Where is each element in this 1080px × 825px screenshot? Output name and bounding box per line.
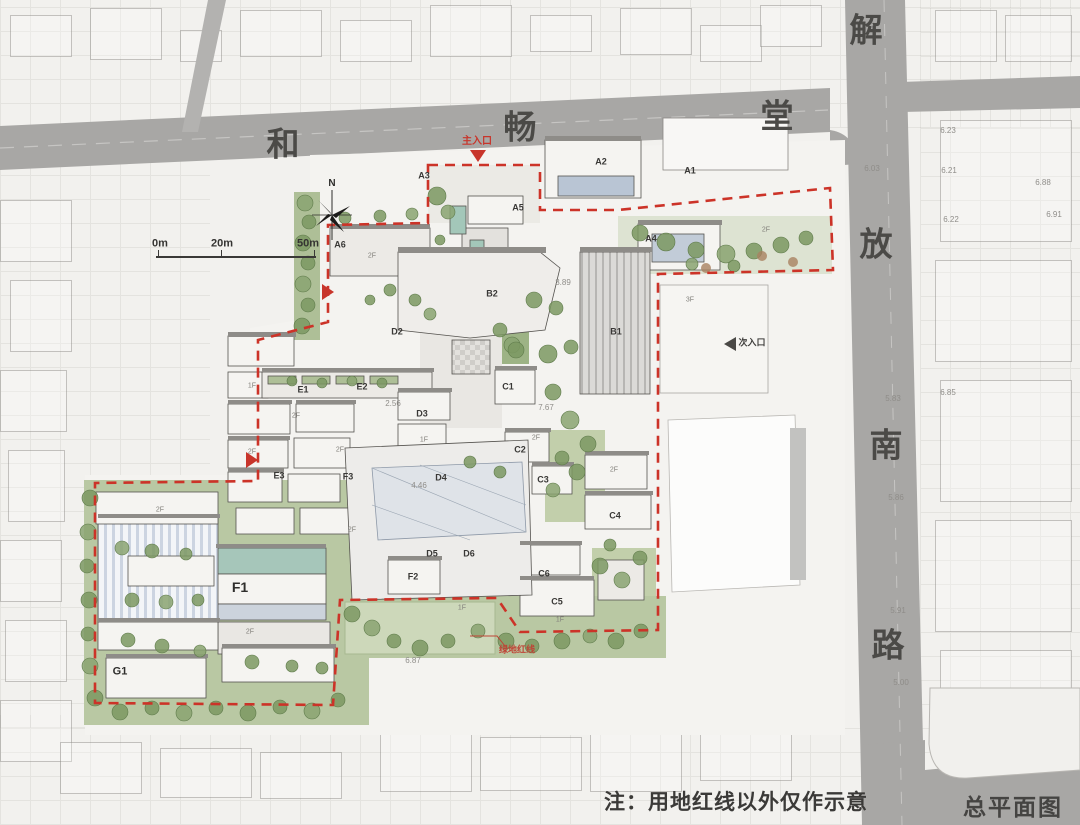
spot-elevation: 6.03: [864, 165, 880, 173]
floor-count-tag: 2F: [246, 629, 254, 636]
building-label: A1: [684, 167, 696, 176]
floor-count-tag: 1F: [556, 617, 564, 624]
tree-icon: [592, 558, 608, 574]
floor-count-tag: 2F: [762, 227, 770, 234]
spot-elevation: 6.22: [943, 216, 959, 224]
spot-elevation: 6.91: [1046, 211, 1062, 219]
tree-icon: [81, 627, 95, 641]
site-plan-canvas: 和畅堂解放南路A1A2A3A4A5A6B1B2C1C2C3C4C5C6D2D3D…: [0, 0, 1080, 825]
tree-icon: [406, 208, 418, 220]
building-label: A3: [418, 172, 430, 181]
main-entrance-label: 主入口: [462, 137, 492, 147]
building-label: D2: [391, 328, 403, 337]
tree-icon: [301, 256, 315, 270]
building-label: D3: [416, 410, 428, 419]
spot-elevation: 7.67: [538, 404, 554, 412]
building-label: A6: [334, 241, 346, 250]
tree-icon: [192, 594, 204, 606]
tree-icon: [614, 572, 630, 588]
tree-icon: [409, 294, 421, 306]
building-label: D4: [435, 474, 447, 483]
building-label-f1: F1: [232, 580, 248, 594]
green-red-line-label: 绿地红线: [499, 646, 535, 655]
tree-icon: [686, 258, 698, 270]
floor-count-tag: 1F: [248, 383, 256, 390]
tree-icon: [145, 544, 159, 558]
tree-icon: [295, 276, 311, 292]
tree-icon: [555, 451, 569, 465]
shrub-icon: [788, 257, 798, 267]
building-label: C1: [502, 383, 514, 392]
tree-icon: [317, 378, 327, 388]
tree-icon: [546, 483, 560, 497]
building-label: D6: [463, 550, 475, 559]
spot-elevation: 6.23: [940, 127, 956, 135]
secondary-entrance-label: 次入口: [738, 339, 765, 348]
tree-icon: [374, 210, 386, 222]
tree-icon: [549, 301, 563, 315]
scale-tick-label: 0m: [152, 239, 168, 250]
scale-tick-label: 20m: [211, 239, 233, 250]
building-label: B1: [610, 328, 622, 337]
building-label: C6: [538, 570, 550, 579]
floor-count-tag: 2F: [336, 447, 344, 454]
drawing-title: 总平面图: [963, 788, 1063, 822]
tree-icon: [112, 704, 128, 720]
scale-tick-20: [221, 250, 222, 256]
tree-icon: [286, 660, 298, 672]
spot-elevation: 6.87: [405, 657, 421, 665]
tree-icon: [688, 242, 704, 258]
tree-icon: [301, 298, 315, 312]
tree-icon: [441, 634, 455, 648]
tree-icon: [297, 195, 313, 211]
building-label: B2: [486, 290, 498, 299]
tree-icon: [508, 342, 524, 358]
spot-elevation: 6.85: [940, 389, 956, 397]
tree-icon: [287, 376, 297, 386]
tree-icon: [773, 237, 789, 253]
building-label: D5: [426, 550, 438, 559]
tree-icon: [273, 700, 287, 714]
tree-icon: [428, 187, 446, 205]
tree-icon: [80, 524, 96, 540]
tree-icon: [302, 215, 316, 229]
tree-icon: [539, 345, 557, 363]
street-name-char-hechangtang: 和: [267, 128, 300, 161]
floor-count-tag: 2F: [532, 435, 540, 442]
tree-icon: [604, 539, 616, 551]
spot-elevation: 5.83: [885, 395, 901, 403]
shrub-icon: [701, 263, 711, 273]
tree-icon: [608, 633, 624, 649]
spot-elevation: 3.89: [555, 279, 571, 287]
tree-icon: [365, 295, 375, 305]
tree-icon: [435, 235, 445, 245]
tree-icon: [569, 464, 585, 480]
tree-icon: [526, 292, 542, 308]
north-label: N: [328, 179, 335, 189]
spot-elevation: 5.00: [893, 679, 909, 687]
tree-icon: [580, 436, 596, 452]
tree-icon: [424, 308, 436, 320]
tree-icon: [316, 662, 328, 674]
spot-elevation: 2.56: [385, 400, 401, 408]
building-label: A4: [645, 235, 657, 244]
tree-icon: [384, 284, 396, 296]
floor-count-tag: 2F: [248, 449, 256, 456]
building-label: F2: [408, 573, 419, 582]
building-label: E1: [297, 386, 308, 395]
tree-icon: [412, 640, 428, 656]
tree-icon: [121, 633, 135, 647]
tree-icon: [377, 378, 387, 388]
building-label: C4: [609, 512, 621, 521]
street-name-char-hechangtang: 畅: [504, 111, 537, 144]
floor-count-tag: 2F: [368, 253, 376, 260]
floor-count-tag: 2F: [292, 413, 300, 420]
street-name-char-jiefang-south: 南: [870, 429, 903, 462]
tree-icon: [799, 231, 813, 245]
building-label-g1: G1: [113, 667, 128, 678]
street-name-char-hechangtang: 堂: [761, 100, 794, 133]
tree-icon: [364, 620, 380, 636]
tree-icon: [554, 633, 570, 649]
spot-elevation: 5.91: [890, 607, 906, 615]
tree-icon: [115, 541, 129, 555]
floor-count-tag: 1F: [458, 605, 466, 612]
tree-icon: [441, 205, 455, 219]
tree-icon: [159, 595, 173, 609]
scale-tick-label: 50m: [297, 239, 319, 250]
tree-icon: [561, 411, 579, 429]
tree-icon: [564, 340, 578, 354]
tree-icon: [240, 705, 256, 721]
building-label: A5: [512, 204, 524, 213]
building-label: E2: [356, 383, 367, 392]
tree-icon: [728, 260, 740, 272]
tree-icon: [387, 634, 401, 648]
tree-icon: [344, 606, 360, 622]
floor-count-tag: 2F: [156, 507, 164, 514]
tree-icon: [245, 655, 259, 669]
shrub-icon: [757, 251, 767, 261]
tree-icon: [80, 559, 94, 573]
building-label: A2: [595, 158, 607, 167]
building-label: C2: [514, 446, 526, 455]
tree-icon: [493, 323, 507, 337]
street-name-char-jiefang-south: 路: [872, 629, 905, 662]
tree-icon: [464, 456, 476, 468]
building-label: C5: [551, 598, 563, 607]
spot-elevation: 4.46: [411, 482, 427, 490]
building-label: F3: [343, 473, 354, 482]
scale-bar: [156, 256, 316, 258]
tree-icon: [155, 639, 169, 653]
scale-tick-0: [158, 250, 159, 256]
tree-icon: [494, 466, 506, 478]
street-name-char-jiefang-south: 解: [850, 14, 883, 47]
building-label: C3: [537, 476, 549, 485]
site-plan-drawing: [0, 0, 1080, 825]
tree-icon: [176, 705, 192, 721]
drawing-note: 注：用地红线以外仅作示意: [604, 786, 868, 816]
tree-icon: [125, 593, 139, 607]
tree-icon: [194, 645, 206, 657]
building-label: E3: [273, 472, 284, 481]
floor-count-tag: 2F: [348, 527, 356, 534]
tree-icon: [657, 233, 675, 251]
floor-count-tag: 2F: [610, 467, 618, 474]
tree-icon: [180, 548, 192, 560]
scale-tick-50: [314, 250, 315, 256]
tree-icon: [633, 551, 647, 565]
street-name-char-jiefang-south: 放: [860, 228, 893, 261]
spot-elevation: 6.21: [941, 167, 957, 175]
floor-count-tag: 3F: [686, 297, 694, 304]
floor-count-tag: 1F: [420, 437, 428, 444]
spot-elevation: 5.86: [888, 494, 904, 502]
tree-icon: [545, 384, 561, 400]
spot-elevation: 6.88: [1035, 179, 1051, 187]
